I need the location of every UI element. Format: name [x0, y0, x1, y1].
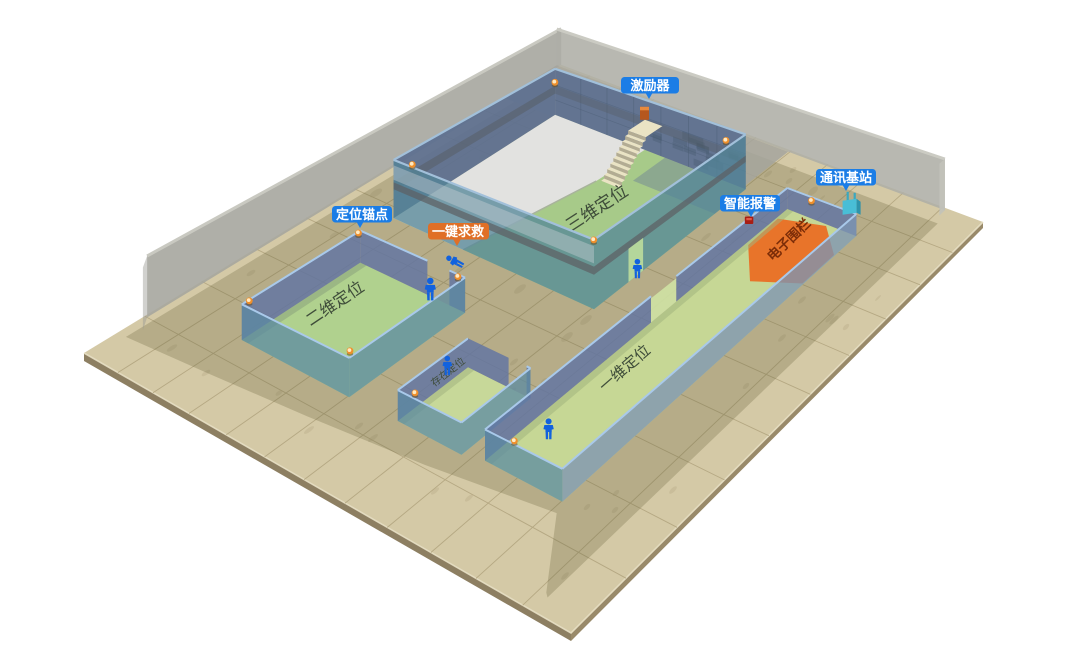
svg-text:一键求救: 一键求救 — [432, 224, 484, 239]
svg-text:通讯基站: 通讯基站 — [820, 170, 872, 185]
svg-text:定位锚点: 定位锚点 — [335, 207, 388, 222]
svg-text:智能报警: 智能报警 — [724, 196, 776, 211]
svg-text:激励器: 激励器 — [630, 78, 670, 93]
